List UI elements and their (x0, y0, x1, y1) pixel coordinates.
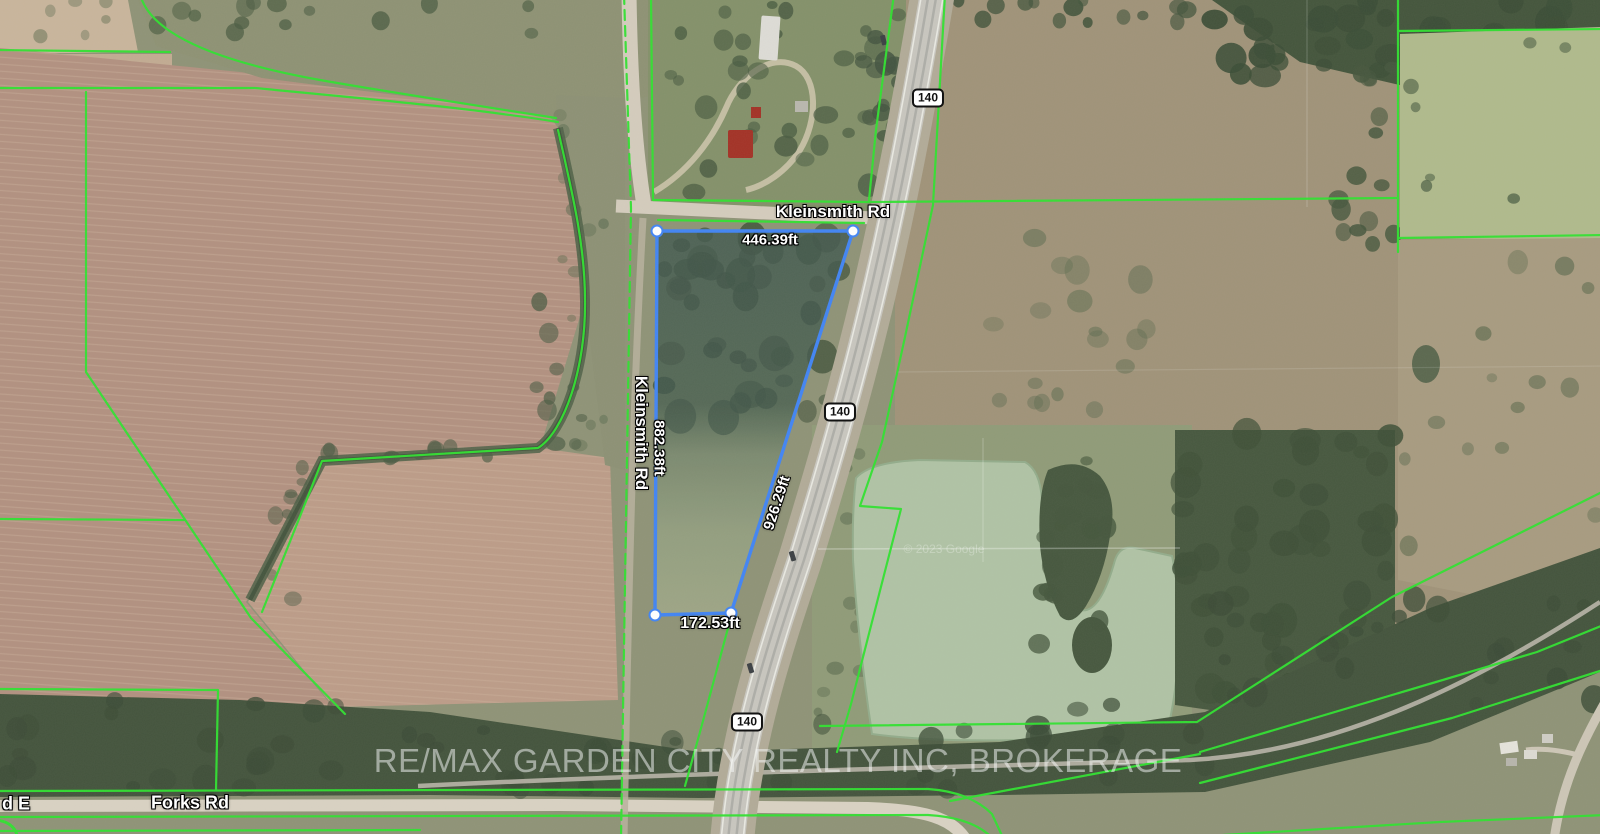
imagery-noise-overlay (0, 0, 1600, 834)
satellite-map-canvas[interactable]: Kleinsmith Rd 446.39ft Kleinsmith Rd 882… (0, 0, 1600, 834)
aerial-imagery (0, 0, 1600, 834)
